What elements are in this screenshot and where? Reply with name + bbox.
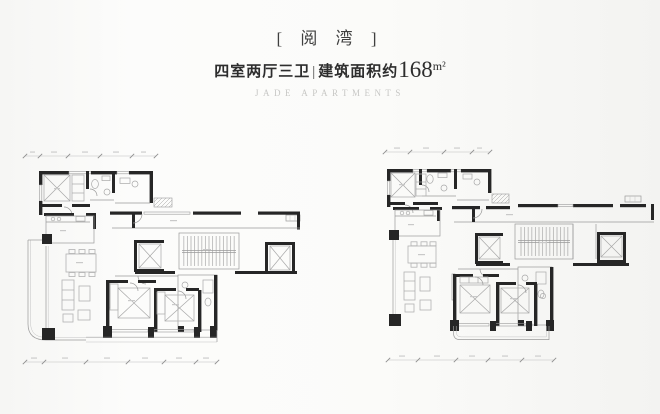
dimension-line-bottom <box>23 358 219 365</box>
corridor-walls <box>110 212 300 230</box>
living-dining-furniture <box>62 250 110 323</box>
area-value: 168 <box>398 57 433 82</box>
kitchen <box>393 207 442 236</box>
rooms-text: 四室两厅三卫 <box>214 64 310 80</box>
left-edge-balcony <box>389 230 401 326</box>
brand-name: JADE APARTMENTS <box>0 88 660 98</box>
core-staircase <box>515 224 596 259</box>
unit-spec: 四室两厅三卫|建筑面积约168m² <box>0 57 660 83</box>
floorplan-left-icon <box>20 140 320 385</box>
bottom-balcony <box>450 320 554 340</box>
area-unit: m² <box>433 59 446 73</box>
floorplan-poster: [ 阅 湾 ] 四室两厅三卫|建筑面积约168m² JADE APARTMENT… <box>0 0 660 414</box>
floorplan-right-icon <box>368 136 656 388</box>
area-label: 建筑面积约 <box>318 64 398 80</box>
corridor-walls <box>452 204 654 222</box>
lower-bathroom <box>115 275 217 332</box>
dimension-line-top <box>383 148 492 155</box>
elevator-right-icon <box>597 232 626 263</box>
elevator-right-icon <box>265 242 295 274</box>
elevator-left-icon <box>475 233 503 264</box>
elevator-left-icon <box>134 240 164 272</box>
ac-platform <box>492 194 641 203</box>
project-title: [ 阅 湾 ] <box>0 24 660 49</box>
core-staircase <box>179 233 239 269</box>
upper-rooms-walls <box>39 171 153 215</box>
bottom-bedrooms <box>106 280 201 332</box>
bathroom-fixtures <box>427 173 480 191</box>
bottom-balcony <box>86 326 217 342</box>
ac-platform <box>154 198 300 221</box>
living-dining-furniture <box>404 242 455 312</box>
master-bedroom-furniture <box>44 175 84 201</box>
header: [ 阅 湾 ] 四室两厅三卫|建筑面积约168m² JADE APARTMENT… <box>0 24 660 98</box>
core-lower-walls <box>476 263 629 266</box>
curved-balcony <box>28 234 86 340</box>
core-lower-walls <box>135 271 297 274</box>
dimension-line-bottom <box>386 356 556 363</box>
dimension-line-top <box>23 152 158 159</box>
bottom-bedrooms <box>453 274 546 326</box>
